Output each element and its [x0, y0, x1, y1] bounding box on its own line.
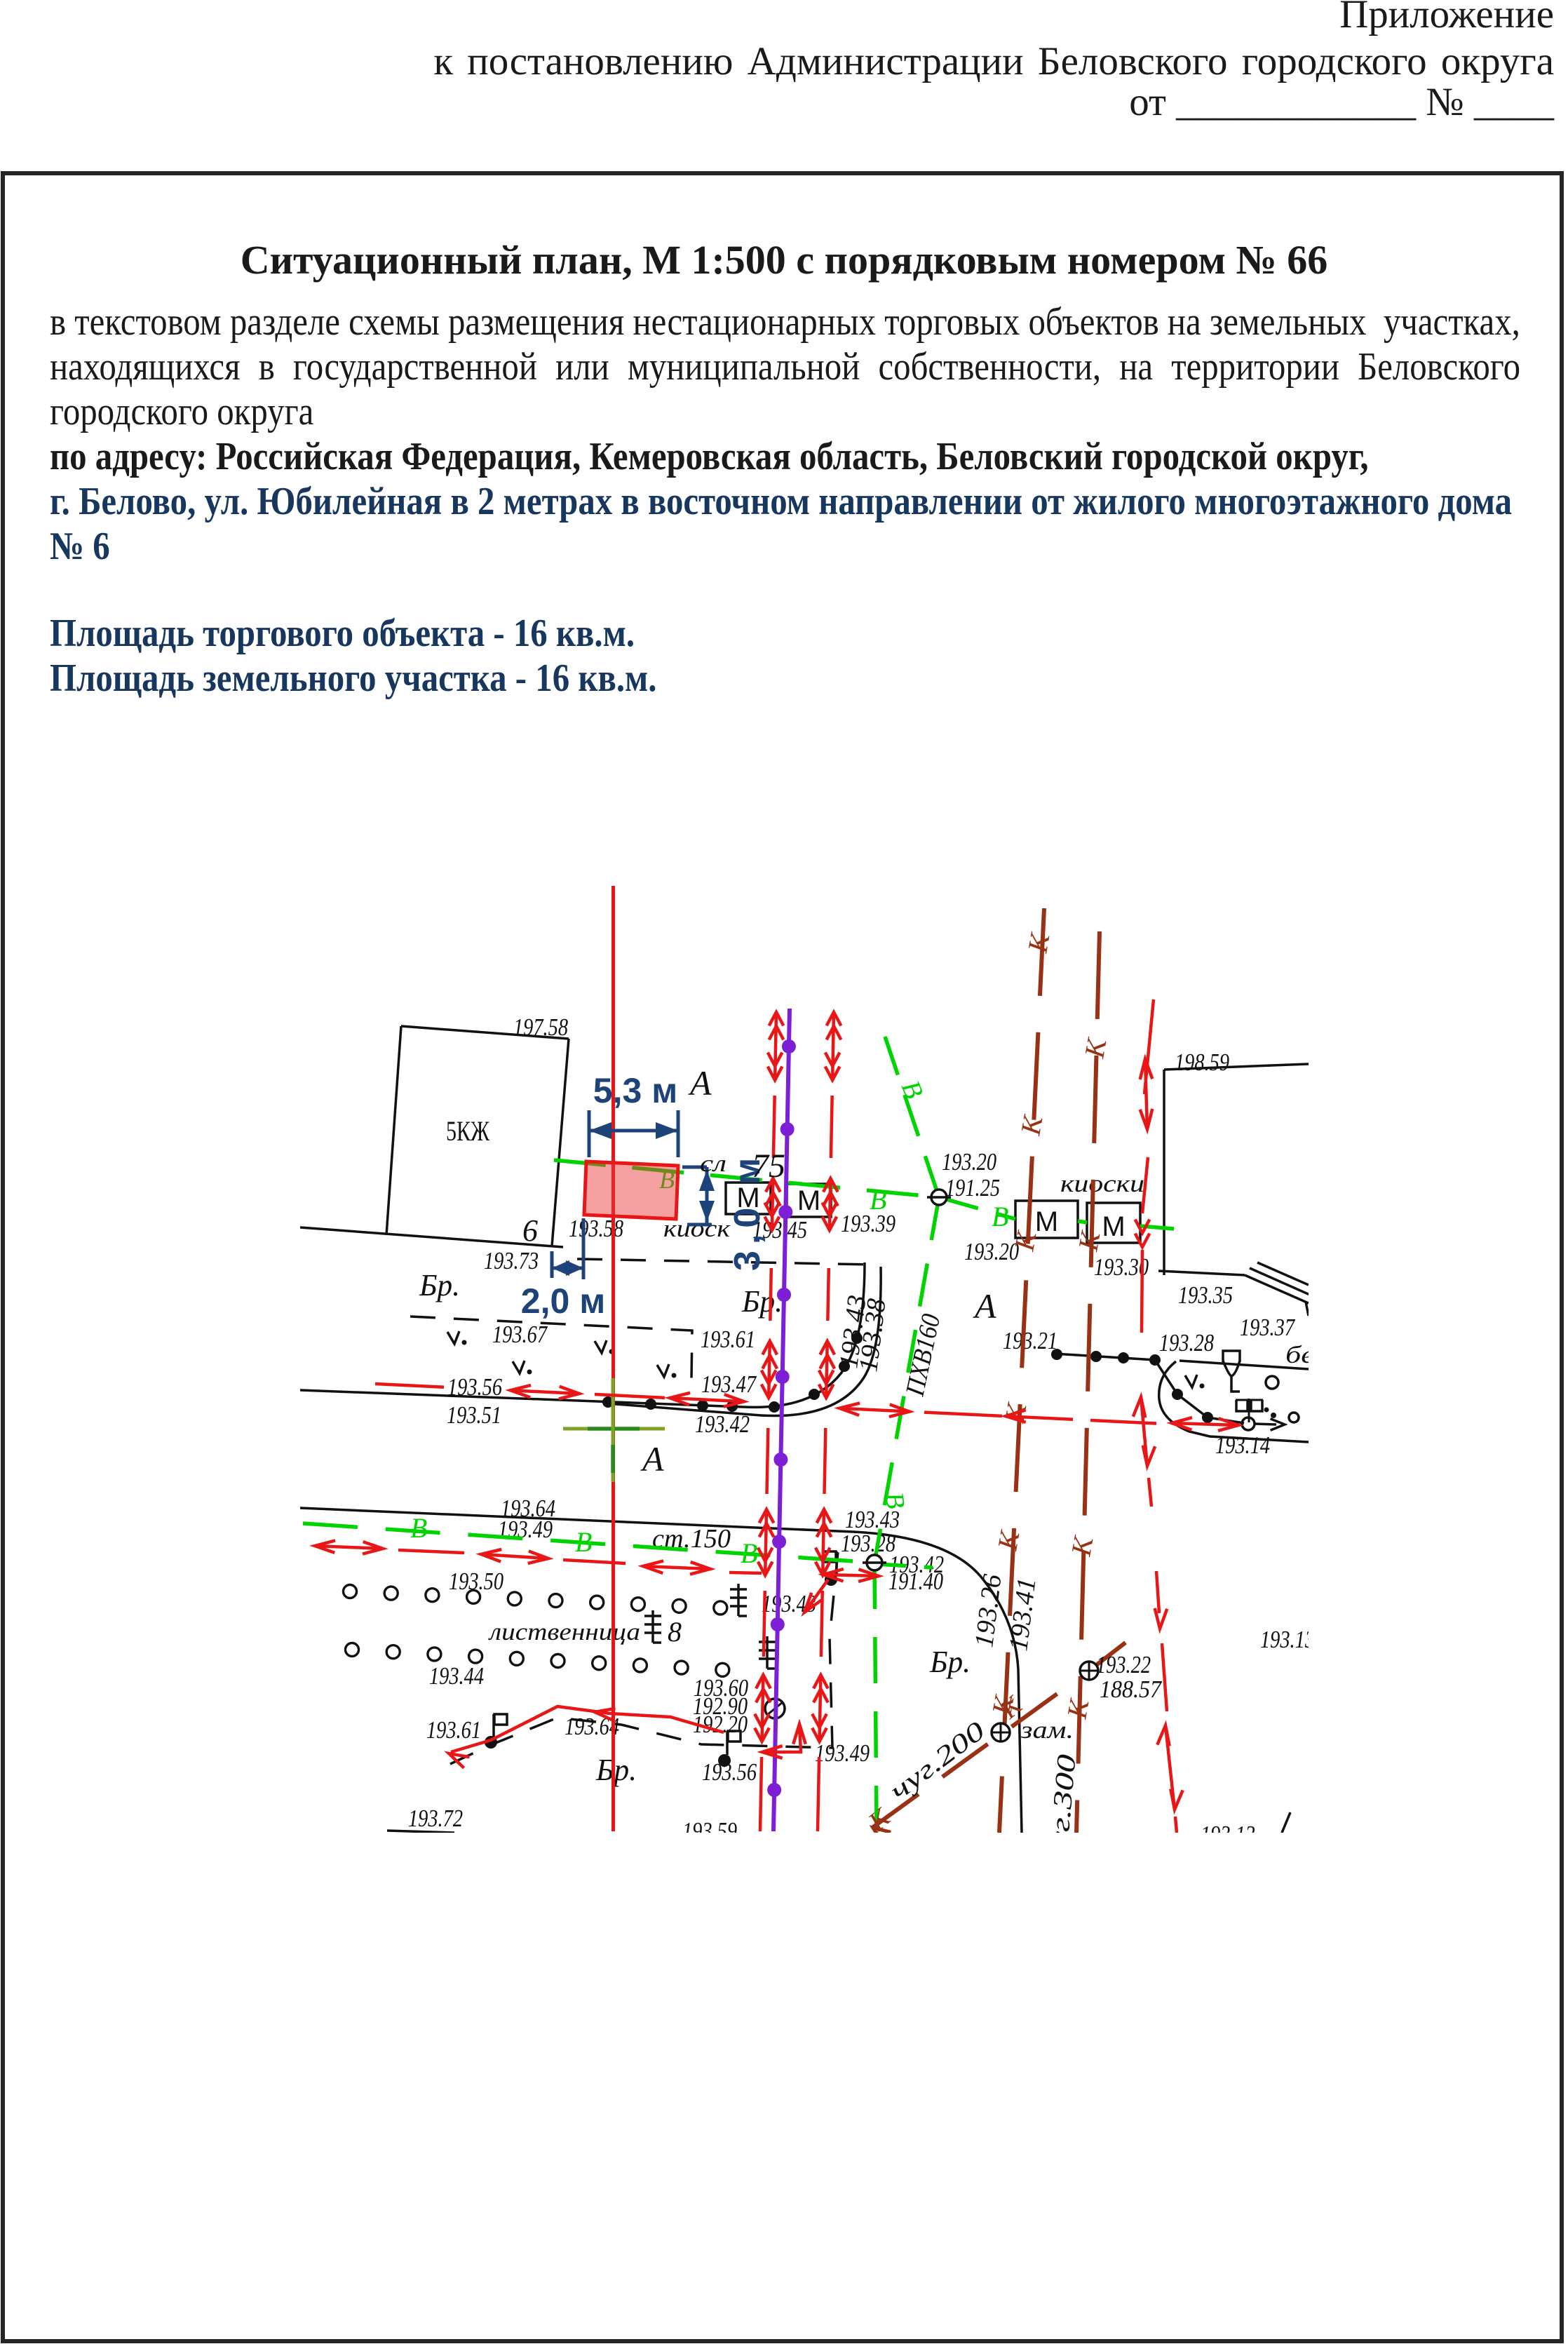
- svg-text:В: В: [741, 1537, 757, 1569]
- svg-text:193.42: 193.42: [695, 1410, 750, 1438]
- svg-text:193.67: 193.67: [492, 1321, 548, 1348]
- svg-text:киоски: киоски: [1060, 1170, 1144, 1197]
- svg-text:193.59: 193.59: [682, 1817, 737, 1845]
- svg-text:2,0 м: 2,0 м: [521, 1281, 605, 1321]
- svg-text:5КЖ: 5КЖ: [446, 1115, 489, 1147]
- svg-text:В: В: [992, 1201, 1008, 1232]
- svg-text:А: А: [688, 1063, 712, 1103]
- svg-text:бе: бе: [1285, 1341, 1315, 1368]
- svg-text:чуг.200: чуг.200: [884, 1716, 990, 1807]
- svg-text:193.73: 193.73: [484, 1247, 539, 1274]
- svg-text:193.58: 193.58: [569, 1215, 623, 1242]
- svg-text:188.57: 188.57: [1100, 1676, 1162, 1703]
- svg-text:193.26: 193.26: [969, 1572, 1007, 1649]
- svg-text:193.13: 193.13: [1201, 1821, 1255, 1848]
- svg-text:193.39: 193.39: [841, 1210, 895, 1237]
- svg-text:К: К: [991, 1527, 1026, 1553]
- svg-text:В: В: [410, 1512, 427, 1544]
- svg-text:191.25: 191.25: [945, 1174, 1000, 1201]
- svg-text:К: К: [1065, 1533, 1100, 1558]
- svg-text:75: 75: [752, 1147, 785, 1185]
- svg-text:193.50: 193.50: [449, 1568, 503, 1595]
- svg-text:Бр.: Бр.: [741, 1284, 783, 1319]
- svg-text:6: 6: [522, 1213, 538, 1248]
- svg-text:лиственница: лиственница: [488, 1618, 640, 1645]
- svg-text:К: К: [1014, 1112, 1049, 1138]
- svg-text:В: В: [895, 1077, 929, 1103]
- svg-text:М: М: [797, 1185, 820, 1216]
- svg-text:чуг.300: чуг.300: [1043, 1753, 1082, 1866]
- svg-text:зам.: зам.: [1020, 1716, 1074, 1744]
- svg-text:193.22: 193.22: [1096, 1651, 1151, 1678]
- svg-text:198.59: 198.59: [1175, 1049, 1229, 1076]
- svg-text:197.58: 197.58: [513, 1013, 568, 1041]
- svg-text:Бр.: Бр.: [929, 1645, 971, 1679]
- svg-text:5,3 м: 5,3 м: [593, 1071, 677, 1110]
- svg-text:193.28: 193.28: [841, 1530, 895, 1557]
- svg-text:193.64: 193.64: [565, 1713, 619, 1740]
- svg-text:К: К: [1078, 1035, 1113, 1060]
- svg-text:Бр.: Бр.: [419, 1268, 460, 1302]
- svg-text:191.40: 191.40: [888, 1568, 943, 1595]
- svg-text:В: В: [575, 1526, 592, 1558]
- svg-text:193.51: 193.51: [447, 1401, 501, 1429]
- svg-text:193.61: 193.61: [426, 1716, 481, 1744]
- svg-text:8: 8: [668, 1616, 682, 1648]
- svg-text:А: А: [640, 1439, 664, 1479]
- svg-text:сл: сл: [700, 1151, 726, 1177]
- svg-text:М: М: [1035, 1206, 1058, 1237]
- svg-text:193.47: 193.47: [701, 1370, 757, 1398]
- svg-text:193.35: 193.35: [1178, 1281, 1233, 1309]
- svg-text:193.14: 193.14: [1215, 1432, 1270, 1459]
- svg-text:А: А: [973, 1286, 996, 1326]
- svg-text:В: В: [879, 1490, 910, 1511]
- svg-text:193.37: 193.37: [1240, 1314, 1295, 1341]
- svg-text:193.61: 193.61: [701, 1326, 755, 1353]
- svg-text:193.44: 193.44: [429, 1662, 484, 1690]
- svg-text:193.72: 193.72: [408, 1805, 463, 1832]
- svg-text:К: К: [863, 1802, 896, 1837]
- svg-text:193.21: 193.21: [1003, 1327, 1057, 1354]
- svg-text:ПХВ160: ПХВ160: [900, 1312, 947, 1399]
- svg-text:193.13: 193.13: [1260, 1626, 1315, 1653]
- svg-text:193.20: 193.20: [942, 1148, 996, 1176]
- svg-text:193.56: 193.56: [447, 1373, 502, 1401]
- svg-text:193.49: 193.49: [815, 1739, 870, 1767]
- svg-text:Бр.: Бр.: [595, 1753, 637, 1787]
- svg-text:К: К: [1021, 929, 1056, 955]
- svg-text:193.28: 193.28: [1159, 1329, 1214, 1356]
